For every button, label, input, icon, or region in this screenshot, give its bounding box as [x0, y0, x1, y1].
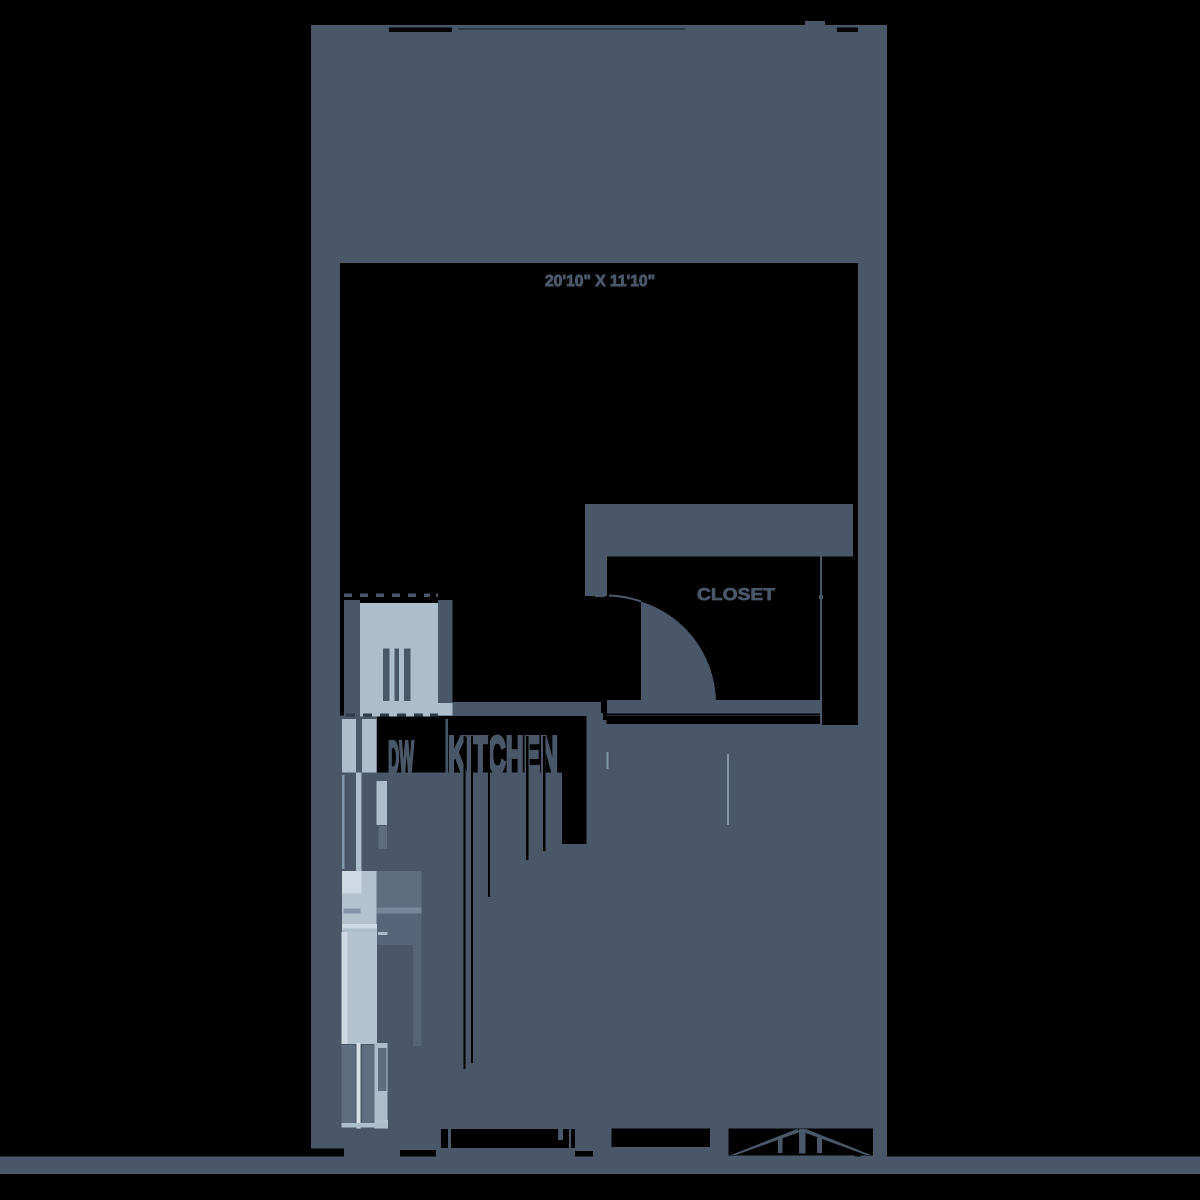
svg-text:DW: DW: [388, 731, 414, 783]
svg-text:20'10" X 11'10": 20'10" X 11'10": [545, 273, 655, 290]
svg-text:CLOSET: CLOSET: [697, 585, 776, 604]
